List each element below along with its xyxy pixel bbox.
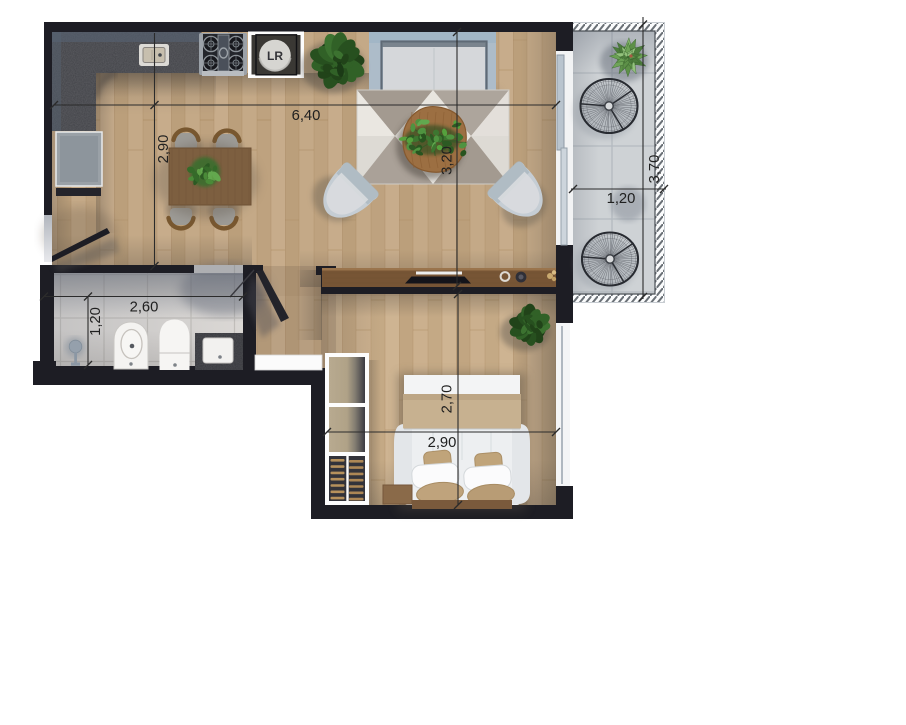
svg-text:2,90: 2,90 <box>156 135 172 164</box>
svg-text:1,20: 1,20 <box>607 191 636 207</box>
svg-text:3,20: 3,20 <box>440 146 456 175</box>
svg-text:3,70: 3,70 <box>647 155 663 184</box>
svg-text:2,70: 2,70 <box>440 385 456 414</box>
svg-text:2,60: 2,60 <box>130 300 159 316</box>
svg-text:2,90: 2,90 <box>428 435 457 451</box>
svg-text:1,20: 1,20 <box>88 307 104 336</box>
svg-text:LR: LR <box>267 49 283 63</box>
svg-text:6,40: 6,40 <box>292 108 321 124</box>
